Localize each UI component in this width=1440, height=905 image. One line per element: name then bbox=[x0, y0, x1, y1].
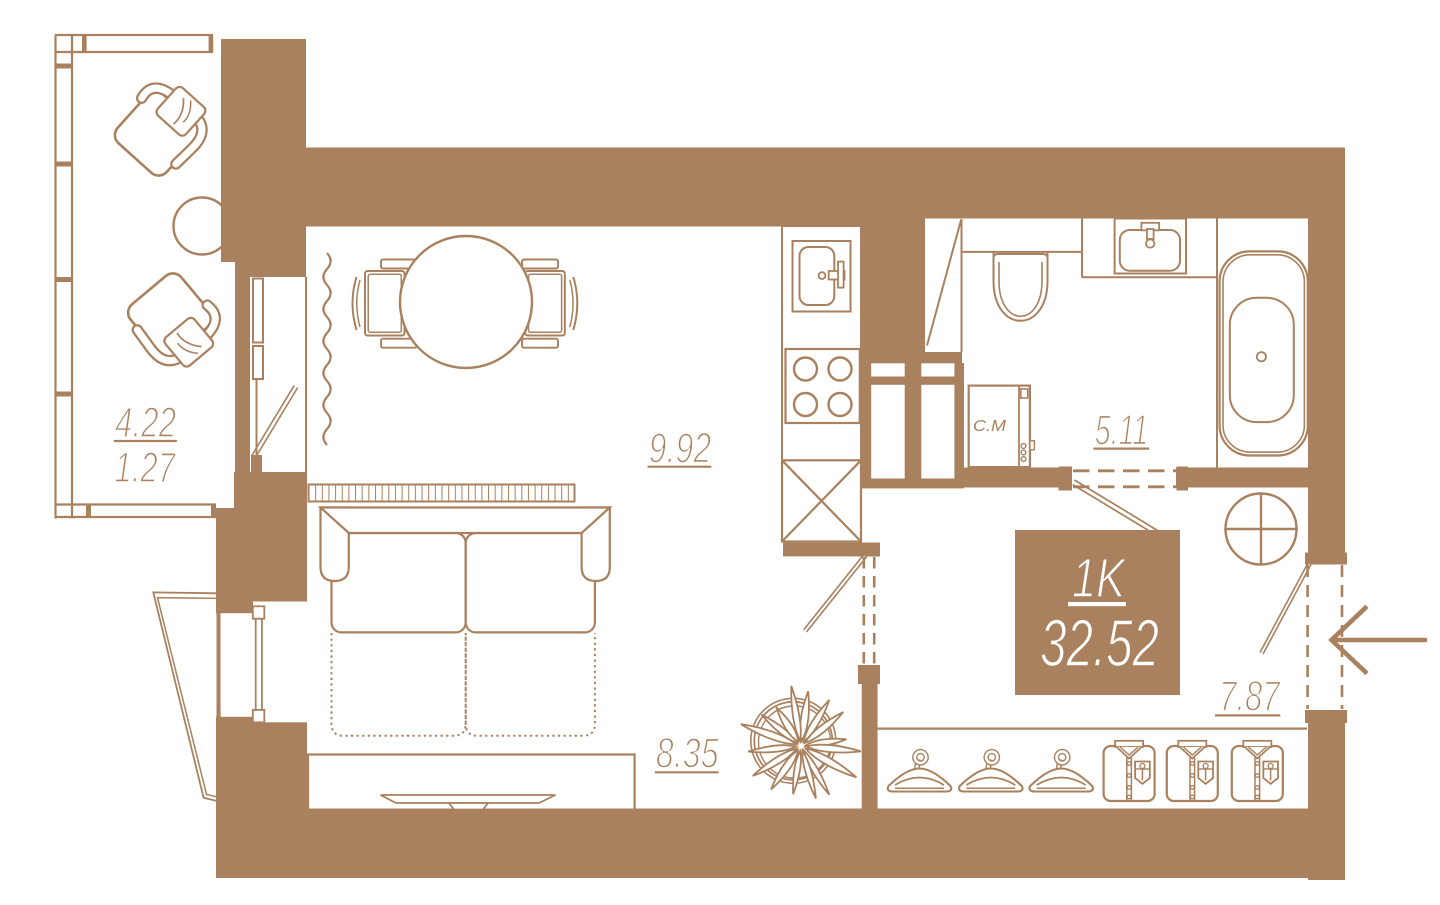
svg-text:8.35: 8.35 bbox=[656, 730, 720, 778]
svg-text:1.27: 1.27 bbox=[114, 444, 176, 492]
svg-text:4.22: 4.22 bbox=[115, 399, 176, 447]
svg-text:1K: 1K bbox=[1072, 546, 1127, 609]
svg-text:32.52: 32.52 bbox=[1040, 606, 1159, 681]
svg-text:5.11: 5.11 bbox=[1095, 406, 1148, 454]
svg-text:C.M: C.M bbox=[973, 418, 1006, 435]
svg-text:7.87: 7.87 bbox=[1219, 673, 1281, 721]
svg-text:9.92: 9.92 bbox=[649, 424, 712, 472]
